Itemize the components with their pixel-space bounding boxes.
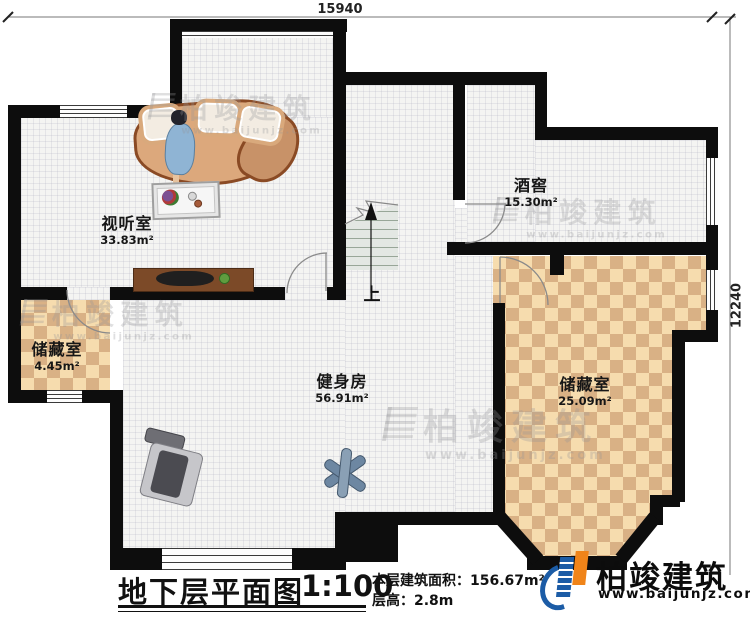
wall (327, 287, 345, 300)
floor-area-label: 本层建筑面积： (372, 573, 470, 589)
room-area: 33.83m² (77, 234, 177, 246)
window (60, 105, 127, 118)
dumbbell-rack (318, 446, 370, 500)
wall (672, 330, 685, 502)
room-name: 储藏室 (535, 377, 635, 394)
plant (219, 273, 230, 284)
window (706, 158, 718, 225)
watermark: 柏竣建筑 www.baijunjz.com (22, 292, 194, 343)
dimension-tick (707, 12, 717, 22)
room-area: 4.45m² (17, 360, 97, 372)
room-label-gym: 健身房 56.91m² (292, 374, 392, 404)
wall (335, 512, 398, 562)
logo-tower-orange (572, 551, 589, 585)
floor-area-row: 本层建筑面积：156.67m² (372, 570, 545, 590)
room-label-av-room: 视听室 33.83m² (77, 216, 177, 246)
company-url: www.baijunjz.com (598, 586, 750, 602)
window (162, 548, 292, 570)
room-name: 酒窖 (481, 178, 581, 195)
floor-gym-strip (455, 256, 493, 512)
tv-cabinet (133, 268, 254, 292)
watermark-url: www.baijunjz.com (526, 229, 667, 241)
watermark: 柏竣建筑 www.baijunjz.com (150, 86, 322, 137)
room-name: 视听室 (77, 216, 177, 233)
floor-height-label: 层高： (372, 593, 414, 609)
room-label-wine-cellar: 酒窖 15.30m² (481, 178, 581, 208)
room-label-storage-right: 储藏室 25.09m² (535, 377, 635, 407)
floor-height-value: 2.8m (414, 593, 453, 609)
wall (535, 127, 718, 140)
room-area: 56.91m² (292, 392, 392, 404)
watermark-url: www.baijunjz.com (425, 448, 606, 463)
tv (156, 271, 214, 286)
stairs-up-label: 上 (360, 280, 384, 305)
dimension-top: 15940 (310, 2, 370, 17)
dimension-tick (3, 12, 13, 22)
floor-door-gap-av (285, 287, 327, 300)
wall (110, 390, 123, 570)
room-area: 15.30m² (481, 196, 581, 208)
wall (550, 255, 564, 275)
wall (333, 19, 346, 300)
coffee-table (151, 181, 220, 220)
wall (447, 242, 718, 255)
watermark-building-icon (382, 407, 418, 441)
window (182, 31, 333, 38)
wall (340, 72, 547, 85)
floor-area-value: 156.67m² (470, 573, 545, 589)
watermark-url: www.baijunjz.com (181, 125, 322, 137)
dimension-tick (725, 14, 735, 24)
dimension-right: 12240 (730, 276, 745, 336)
window (706, 270, 718, 310)
wall (706, 127, 718, 158)
title-underline-thin (118, 611, 366, 612)
room-name: 健身房 (292, 374, 392, 391)
watermark-building-icon (20, 299, 48, 326)
room-area: 25.09m² (535, 395, 635, 407)
floor-height-row: 层高：2.8m (372, 590, 453, 610)
room-name: 储藏室 (17, 342, 97, 359)
watermark-name: 柏竣建筑 (180, 86, 317, 127)
window (47, 390, 82, 403)
room-label-storage-left: 储藏室 4.45m² (17, 342, 97, 372)
watermark-name: 柏竣建筑 (52, 292, 189, 333)
wall (650, 495, 663, 525)
wall (110, 548, 162, 570)
company-logo-icon (544, 551, 592, 603)
wall (8, 390, 47, 403)
wall (453, 80, 465, 200)
floor-plan: 柏竣建筑 www.baijunjz.com 柏竣建筑 www.baijunjz.… (0, 0, 750, 621)
title-underline (118, 605, 366, 608)
watermark-building-icon (148, 93, 176, 120)
